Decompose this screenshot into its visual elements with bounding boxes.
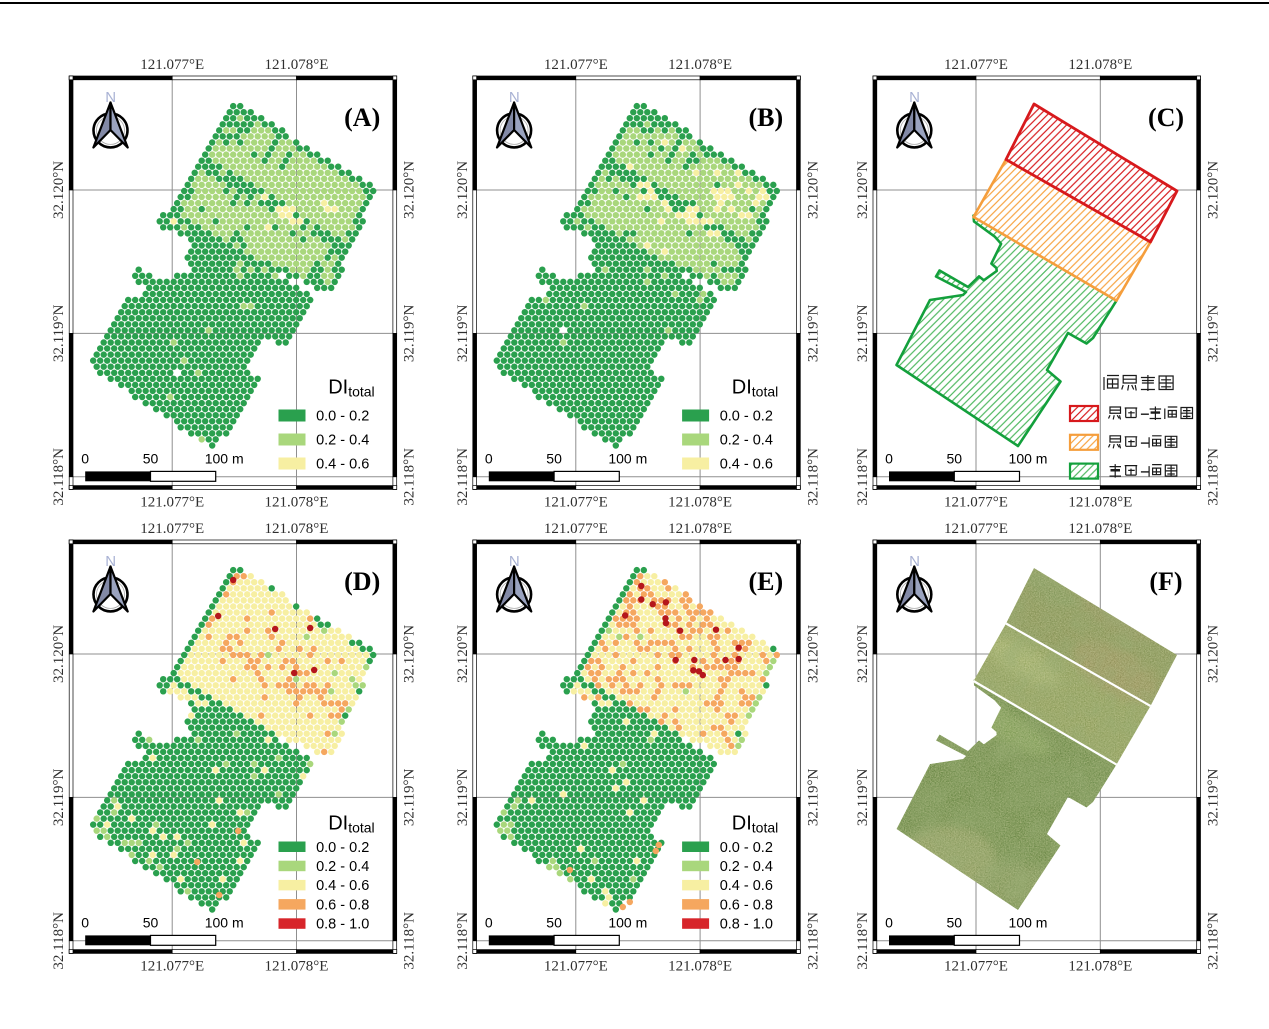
svg-text:32.120°N: 32.120°N (1206, 625, 1222, 683)
svg-text:32.120°N: 32.120°N (805, 161, 821, 219)
svg-text:0.8 - 1.0: 0.8 - 1.0 (316, 917, 369, 933)
svg-text:32.118°N: 32.118°N (1206, 912, 1222, 970)
svg-text:121.078°E: 121.078°E (1068, 494, 1132, 510)
svg-text:0.0 - 0.2: 0.0 - 0.2 (316, 840, 369, 856)
svg-text:121.078°E: 121.078°E (265, 521, 329, 537)
svg-text:50: 50 (947, 451, 963, 467)
svg-text:121.078°E: 121.078°E (668, 494, 732, 510)
svg-text:32.119°N: 32.119°N (455, 304, 471, 362)
svg-text:32.118°N: 32.118°N (402, 448, 418, 506)
svg-text:(D): (D) (344, 567, 380, 596)
svg-text:0: 0 (81, 451, 89, 467)
svg-text:121.077°E: 121.077°E (944, 958, 1008, 974)
svg-text:0: 0 (885, 915, 893, 931)
svg-text:100 m: 100 m (1009, 451, 1048, 467)
svg-text:32.119°N: 32.119°N (51, 304, 67, 362)
svg-text:0: 0 (81, 915, 89, 931)
svg-text:32.118°N: 32.118°N (455, 912, 471, 970)
svg-text:32.120°N: 32.120°N (805, 625, 821, 683)
svg-text:(B): (B) (748, 103, 783, 132)
svg-text:32.120°N: 32.120°N (51, 161, 67, 219)
svg-text:(A): (A) (344, 103, 380, 132)
svg-text:0.8 - 1.0: 0.8 - 1.0 (720, 917, 773, 933)
svg-text:121.078°E: 121.078°E (1068, 958, 1132, 974)
svg-text:32.120°N: 32.120°N (855, 161, 871, 219)
svg-text:121.077°E: 121.077°E (140, 521, 204, 537)
svg-text:32.118°N: 32.118°N (805, 912, 821, 970)
svg-text:121.078°E: 121.078°E (265, 57, 329, 73)
svg-text:0.4 - 0.6: 0.4 - 0.6 (720, 878, 773, 894)
svg-text:121.077°E: 121.077°E (944, 494, 1008, 510)
svg-text:32.119°N: 32.119°N (402, 768, 418, 826)
svg-text:32.119°N: 32.119°N (455, 768, 471, 826)
svg-text:0.2 - 0.4: 0.2 - 0.4 (316, 859, 369, 875)
svg-text:32.118°N: 32.118°N (855, 448, 871, 506)
svg-text:121.077°E: 121.077°E (944, 521, 1008, 537)
svg-text:0: 0 (885, 451, 893, 467)
svg-text:50: 50 (546, 915, 562, 931)
svg-text:32.119°N: 32.119°N (855, 768, 871, 826)
svg-text:32.118°N: 32.118°N (805, 448, 821, 506)
svg-text:0.6 - 0.8: 0.6 - 0.8 (720, 897, 773, 913)
svg-text:0.2 - 0.4: 0.2 - 0.4 (720, 433, 773, 449)
svg-text:121.077°E: 121.077°E (544, 521, 608, 537)
svg-text:100 m: 100 m (1009, 915, 1048, 931)
svg-text:32.120°N: 32.120°N (402, 161, 418, 219)
svg-text:121.077°E: 121.077°E (544, 958, 608, 974)
svg-text:121.077°E: 121.077°E (140, 57, 204, 73)
svg-text:121.078°E: 121.078°E (265, 494, 329, 510)
svg-text:32.120°N: 32.120°N (402, 625, 418, 683)
svg-text:0.6 - 0.8: 0.6 - 0.8 (316, 897, 369, 913)
svg-text:32.119°N: 32.119°N (1206, 768, 1222, 826)
svg-text:121.078°E: 121.078°E (668, 958, 732, 974)
svg-text:0.2 - 0.4: 0.2 - 0.4 (316, 433, 369, 449)
svg-text:50: 50 (947, 915, 963, 931)
svg-text:100 m: 100 m (205, 915, 244, 931)
svg-text:121.078°E: 121.078°E (1068, 57, 1132, 73)
svg-text:121.077°E: 121.077°E (140, 494, 204, 510)
svg-text:121.077°E: 121.077°E (544, 494, 608, 510)
svg-text:32.119°N: 32.119°N (1206, 304, 1222, 362)
svg-text:100 m: 100 m (608, 915, 647, 931)
svg-text:0: 0 (485, 915, 493, 931)
svg-text:121.078°E: 121.078°E (668, 521, 732, 537)
svg-text:121.078°E: 121.078°E (1068, 521, 1132, 537)
svg-text:32.120°N: 32.120°N (1206, 161, 1222, 219)
svg-text:DItotal: DItotal (732, 813, 778, 836)
svg-text:0.4 - 0.6: 0.4 - 0.6 (316, 878, 369, 894)
svg-text:32.119°N: 32.119°N (855, 304, 871, 362)
svg-text:32.118°N: 32.118°N (51, 912, 67, 970)
svg-text:DItotal: DItotal (328, 813, 374, 836)
svg-text:32.120°N: 32.120°N (51, 625, 67, 683)
svg-text:50: 50 (143, 451, 159, 467)
svg-text:0.4 - 0.6: 0.4 - 0.6 (720, 457, 773, 473)
svg-text:32.119°N: 32.119°N (51, 768, 67, 826)
svg-text:32.118°N: 32.118°N (51, 448, 67, 506)
svg-text:100 m: 100 m (205, 451, 244, 467)
svg-text:32.119°N: 32.119°N (805, 304, 821, 362)
svg-text:32.118°N: 32.118°N (402, 912, 418, 970)
svg-text:0: 0 (485, 451, 493, 467)
svg-text:32.120°N: 32.120°N (455, 625, 471, 683)
svg-text:0.0 - 0.2: 0.0 - 0.2 (316, 409, 369, 425)
svg-text:(F): (F) (1149, 567, 1182, 596)
svg-text:DItotal: DItotal (732, 377, 778, 400)
svg-text:DItotal: DItotal (328, 377, 374, 400)
svg-text:0.4 - 0.6: 0.4 - 0.6 (316, 457, 369, 473)
svg-text:100 m: 100 m (608, 451, 647, 467)
svg-text:121.077°E: 121.077°E (140, 958, 204, 974)
svg-text:32.119°N: 32.119°N (805, 768, 821, 826)
svg-text:0.0 - 0.2: 0.0 - 0.2 (720, 409, 773, 425)
svg-text:0.2 - 0.4: 0.2 - 0.4 (720, 859, 773, 875)
svg-text:121.078°E: 121.078°E (668, 57, 732, 73)
svg-text:32.118°N: 32.118°N (455, 448, 471, 506)
svg-text:32.120°N: 32.120°N (455, 161, 471, 219)
svg-text:0.0 - 0.2: 0.0 - 0.2 (720, 840, 773, 856)
svg-text:32.118°N: 32.118°N (1206, 448, 1222, 506)
svg-text:121.078°E: 121.078°E (265, 958, 329, 974)
svg-text:(C): (C) (1148, 103, 1184, 132)
svg-text:(E): (E) (748, 567, 783, 596)
svg-text:121.077°E: 121.077°E (944, 57, 1008, 73)
svg-text:50: 50 (143, 915, 159, 931)
svg-text:32.120°N: 32.120°N (855, 625, 871, 683)
svg-text:32.119°N: 32.119°N (402, 304, 418, 362)
svg-text:50: 50 (546, 451, 562, 467)
svg-text:32.118°N: 32.118°N (855, 912, 871, 970)
svg-text:121.077°E: 121.077°E (544, 57, 608, 73)
